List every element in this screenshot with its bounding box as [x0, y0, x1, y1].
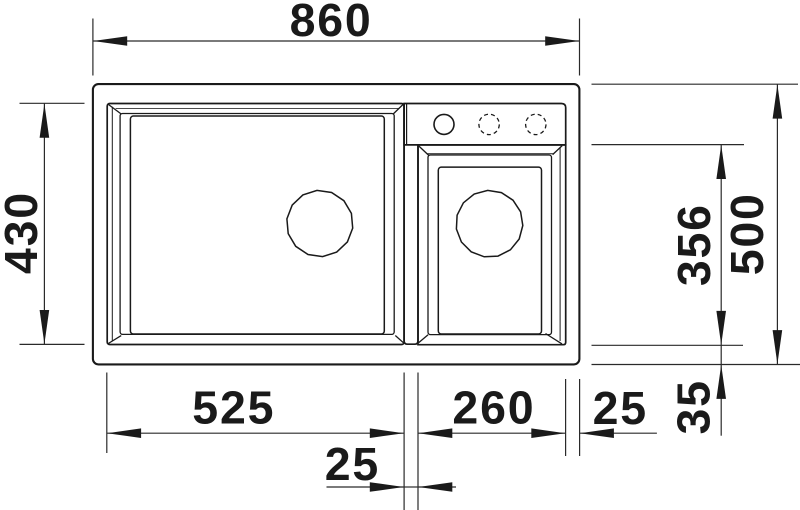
svg-text:860: 860: [290, 0, 373, 46]
svg-text:260: 260: [452, 382, 535, 434]
svg-text:500: 500: [721, 192, 773, 275]
svg-text:525: 525: [192, 382, 275, 434]
svg-text:25: 25: [325, 438, 380, 490]
svg-text:356: 356: [668, 203, 720, 286]
svg-text:35: 35: [668, 379, 720, 434]
svg-text:430: 430: [0, 191, 47, 274]
svg-text:25: 25: [593, 382, 648, 434]
